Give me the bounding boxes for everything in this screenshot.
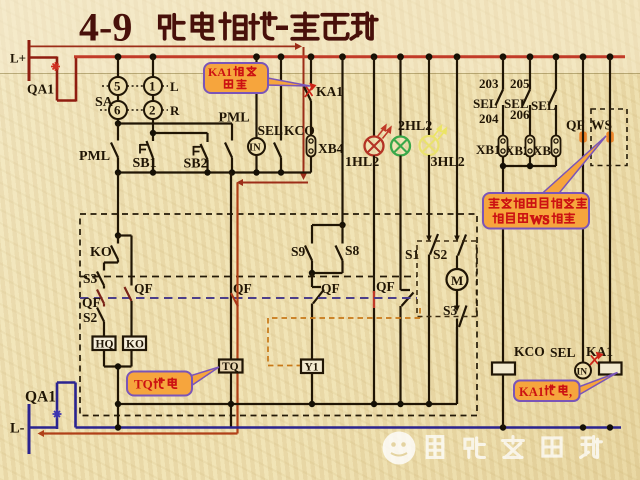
svg-text:TQ: TQ <box>134 377 153 392</box>
svg-text:KO: KO <box>126 339 144 351</box>
svg-text:Y1: Y1 <box>305 362 319 374</box>
svg-text:IN: IN <box>249 143 261 154</box>
svg-text:206: 206 <box>510 107 530 122</box>
svg-text:XB1: XB1 <box>476 142 501 157</box>
svg-text:PML: PML <box>219 111 250 126</box>
svg-text:L+: L+ <box>10 51 26 66</box>
svg-text:QF: QF <box>376 279 395 294</box>
svg-text:KO: KO <box>90 245 112 260</box>
svg-text:6: 6 <box>114 103 121 118</box>
svg-text:204: 204 <box>479 111 499 126</box>
svg-text:R: R <box>170 103 180 118</box>
svg-text:SEL: SEL <box>550 345 576 360</box>
svg-text:TQ: TQ <box>222 361 239 373</box>
svg-text:M: M <box>451 273 463 288</box>
svg-text:L-: L- <box>10 421 25 437</box>
svg-text:QA1: QA1 <box>27 82 54 97</box>
svg-text:KA1: KA1 <box>519 385 544 399</box>
svg-text:,: , <box>569 385 572 399</box>
svg-text:3HL2: 3HL2 <box>431 155 465 170</box>
svg-text:203: 203 <box>479 76 499 91</box>
svg-text:QA1: QA1 <box>25 389 56 406</box>
svg-text:2: 2 <box>149 103 156 118</box>
svg-text:SA: SA <box>95 95 114 110</box>
svg-text:L: L <box>170 79 179 94</box>
svg-text:SB2: SB2 <box>184 157 208 172</box>
svg-text:KCO: KCO <box>514 344 545 359</box>
svg-text:QF: QF <box>233 281 252 296</box>
svg-text:WS: WS <box>591 118 612 133</box>
svg-text:XB4: XB4 <box>318 141 344 156</box>
svg-text:PML: PML <box>79 149 110 164</box>
svg-text:KA1: KA1 <box>316 84 343 99</box>
svg-text:1: 1 <box>149 79 156 94</box>
svg-text:4-9: 4-9 <box>79 5 132 50</box>
svg-text:QF: QF <box>134 281 153 296</box>
svg-text:IN: IN <box>577 368 588 378</box>
svg-text:S3: S3 <box>83 271 98 286</box>
svg-text:SEL: SEL <box>258 123 284 138</box>
svg-text:2HL2: 2HL2 <box>398 119 432 134</box>
svg-text:S9: S9 <box>291 244 306 259</box>
svg-text:KA1: KA1 <box>208 65 232 79</box>
svg-text:WS: WS <box>530 213 550 227</box>
svg-text:S2: S2 <box>433 247 448 262</box>
svg-text:5: 5 <box>114 79 121 94</box>
svg-text:SEL: SEL <box>473 96 498 111</box>
svg-text:QF: QF <box>321 281 340 296</box>
svg-text:S8: S8 <box>345 243 360 258</box>
svg-text:S2: S2 <box>83 310 98 325</box>
svg-text:HQ: HQ <box>96 339 114 351</box>
svg-text:205: 205 <box>510 76 530 91</box>
